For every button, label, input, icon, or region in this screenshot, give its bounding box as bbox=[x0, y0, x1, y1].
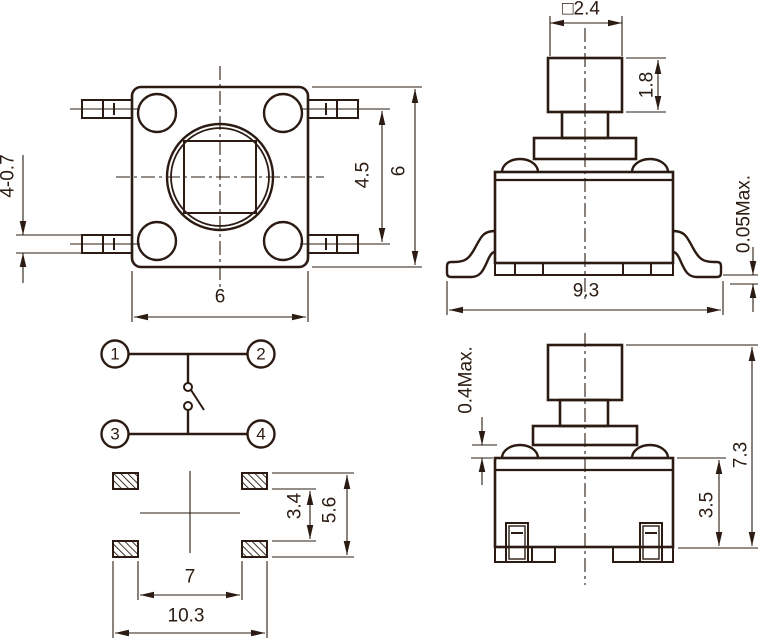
dim-label-lead-width: 4-0.7 bbox=[0, 154, 18, 197]
front-view bbox=[447, 16, 758, 315]
crosshair bbox=[140, 471, 240, 553]
terminal-number-2: 2 bbox=[256, 346, 265, 363]
terminal-strip bbox=[495, 547, 673, 562]
top-view bbox=[16, 66, 422, 322]
switch-contact bbox=[184, 383, 192, 391]
corner-hole bbox=[264, 94, 302, 132]
dim-label-travel: 0.4Max. bbox=[457, 346, 476, 414]
dim-label-body-height: 6 bbox=[390, 166, 409, 177]
dimensions bbox=[447, 16, 758, 315]
dimensions bbox=[113, 473, 354, 638]
dim-label-lead-pitch: 4.5 bbox=[354, 162, 373, 188]
dim-label-pad-outer-horizontal: 10.3 bbox=[168, 607, 205, 626]
dim-label-coplanarity: 0.05Max. bbox=[735, 175, 754, 253]
body bbox=[495, 172, 673, 263]
dome-bump bbox=[632, 159, 668, 172]
dome-bump bbox=[632, 445, 668, 458]
corner-hole bbox=[138, 222, 176, 260]
circuit-schematic bbox=[102, 341, 275, 448]
dim-label-body-width: 6 bbox=[215, 288, 226, 307]
terminal-number-4: 4 bbox=[256, 426, 265, 443]
gullwing-lead-right bbox=[673, 231, 721, 277]
side-view bbox=[471, 333, 758, 585]
dim-label-actuator-height: 1.8 bbox=[638, 72, 657, 98]
switch-contact bbox=[184, 402, 192, 410]
dim-label-actuator-size: □2.4 bbox=[562, 0, 600, 19]
switch-arm bbox=[191, 390, 204, 410]
dim-label-pad-outer-vertical: 5.6 bbox=[321, 497, 340, 523]
dim-label-side-body-height: 3.5 bbox=[698, 492, 717, 518]
dim-label-total-height: 7.3 bbox=[732, 442, 751, 468]
dome-bump bbox=[502, 445, 538, 458]
terminal-strip bbox=[495, 263, 673, 275]
terminal-number-3: 3 bbox=[110, 426, 119, 443]
tact-switch-dimension-drawing: 4-0.7 4.5 6 6 □2.4 1.8 0.05Max. 9.3 1 2 … bbox=[0, 0, 760, 638]
corner-hole bbox=[264, 222, 302, 260]
dim-label-pad-inner-vertical: 3.4 bbox=[286, 493, 305, 519]
corner-hole bbox=[138, 94, 176, 132]
button-stem bbox=[560, 400, 608, 426]
terminal-number-1: 1 bbox=[110, 346, 119, 363]
dome-bump bbox=[502, 159, 538, 172]
gullwing-lead-left bbox=[447, 231, 495, 277]
front-legs bbox=[506, 523, 662, 562]
dim-label-lead-span: 9.3 bbox=[573, 282, 599, 301]
dim-label-pad-inner-horizontal: 7 bbox=[185, 568, 196, 587]
pcb-footprint bbox=[113, 471, 354, 638]
